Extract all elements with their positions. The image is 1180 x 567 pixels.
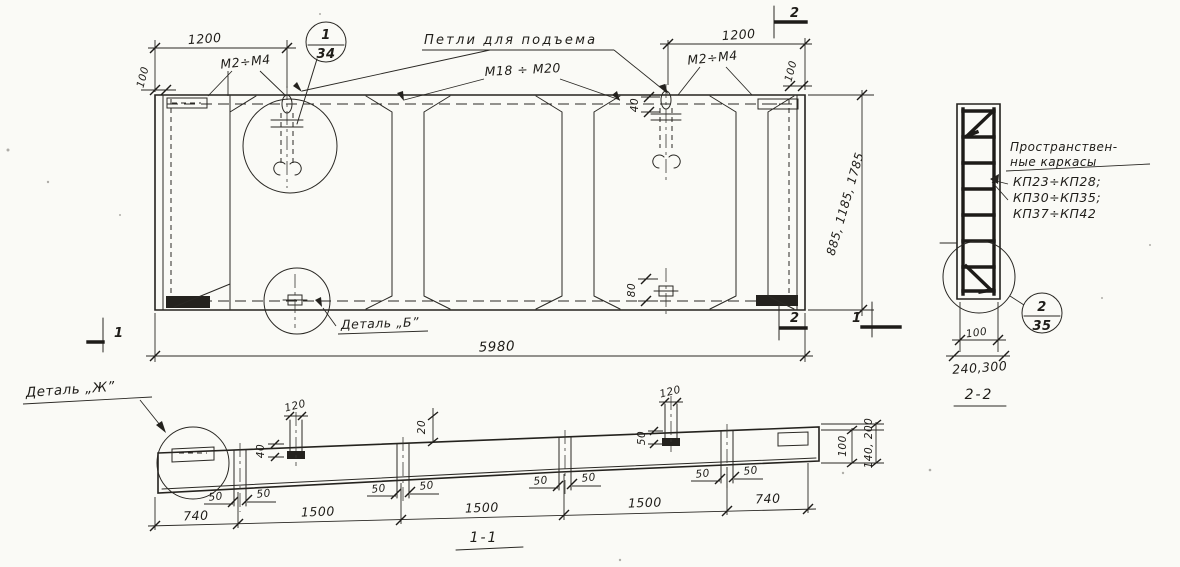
spatial-cage	[963, 109, 994, 294]
balloon-sheet-number: 34	[316, 47, 335, 62]
section-1-1-title: 1-1	[456, 530, 523, 550]
view-title: 2-2	[965, 387, 994, 403]
dim-label: 100	[783, 59, 800, 83]
dim-label: 80	[626, 283, 638, 297]
dim-label: 5980	[478, 338, 515, 355]
loop-plate-b: 120 50	[636, 384, 683, 452]
drawing-sheet: 1 34 Петли для подъема М2÷М4 М18 ÷ М20 М…	[0, 0, 1180, 567]
section-mark-1-right: 1	[852, 302, 900, 337]
section-mark-1-left: 1	[88, 318, 124, 352]
section-2-2-view: Пространствен- ные каркасы КП23÷КП28; КП…	[940, 104, 1150, 406]
detail-zh-callout: Деталь „Ж”	[23, 379, 166, 433]
balloon-sheet-number: 35	[1032, 319, 1051, 334]
mark-label: М2÷М4	[220, 51, 272, 71]
detail-balloon-2-35: 2 35	[1010, 293, 1062, 334]
detail-circle-loop	[243, 99, 337, 193]
dim-label: 240,300	[952, 358, 1008, 377]
section-mark-label: 1	[852, 311, 862, 326]
mark-label: М2÷М4	[687, 47, 739, 67]
dim-label: 50	[533, 474, 549, 487]
dim-label: 140, 200	[863, 418, 875, 469]
lifting-loop-2	[651, 84, 681, 182]
detail-b-callout: Деталь „Б”	[315, 297, 428, 334]
dim-label: 40	[629, 98, 641, 112]
detail-zh-plate	[157, 427, 229, 499]
loops-callout-label: Петли для подъема	[424, 33, 597, 48]
dim-label: 740	[755, 491, 781, 507]
arrowhead	[315, 297, 322, 307]
callout-line: Пространствен-	[1010, 140, 1118, 154]
plan-view: 1 34 Петли для подъема М2÷М4 М18 ÷ М20 М…	[88, 6, 900, 362]
panel-working-drawing: 1 34 Петли для подъема М2÷М4 М18 ÷ М20 М…	[0, 0, 1180, 567]
mark-m2m4-left: М2÷М4	[208, 51, 286, 96]
dim-100-right: 100	[783, 59, 812, 91]
dim-label: 50	[636, 431, 648, 445]
section-mark-label: 2	[790, 6, 800, 21]
dim-label: 100	[965, 326, 988, 341]
dim-label: 50	[208, 490, 224, 503]
end-plate	[778, 432, 808, 446]
section-mark-label: 1	[114, 326, 124, 341]
dim-label: 120	[283, 398, 307, 415]
balloon-detail-number: 1	[321, 28, 331, 43]
dim-label: 1500	[628, 494, 662, 510]
arrowhead	[156, 421, 166, 433]
dim-label: 50	[581, 471, 597, 484]
dim-label: 50	[419, 479, 435, 492]
detail-balloon-1-34: 1 34	[297, 22, 346, 124]
dim-label: 1500	[465, 499, 499, 515]
detail-zh-label: Деталь „Ж”	[24, 379, 116, 401]
dim-label: 50	[695, 467, 711, 480]
cages-callout: Пространствен- ные каркасы КП23÷КП28; КП…	[990, 140, 1150, 221]
dim-label: 50	[371, 482, 387, 495]
embedded-plate	[166, 98, 798, 308]
transverse-ribs	[174, 96, 794, 309]
dim-label: 1200	[721, 26, 756, 43]
view-title: 1-1	[470, 530, 499, 546]
dim-label: 100	[837, 435, 849, 457]
dim-label: 50	[743, 464, 759, 477]
arrowhead	[293, 82, 302, 92]
section-mark-label: 2	[790, 311, 800, 326]
dim-20: 20	[416, 408, 438, 446]
dim-label: 740	[183, 508, 209, 524]
dim-label: 1500	[301, 503, 335, 519]
mark-label: М18 ÷ М20	[484, 60, 561, 79]
cage-marks-line: КП23÷КП28;	[1013, 174, 1101, 189]
loops-callout: Петли для подъема	[293, 33, 668, 94]
section-mark-2-top: 2	[774, 6, 806, 38]
section-2-2-title: 2-2	[954, 387, 1006, 406]
dim-panel-widths: 885, 1185, 1785	[808, 90, 874, 316]
dim-label: 100	[135, 65, 152, 89]
mark-m2m4-right: М2÷М4	[678, 47, 752, 95]
dim-label: 20	[416, 420, 428, 434]
dim-label: 1200	[187, 30, 222, 47]
loop-plate-a: 120 40	[255, 398, 308, 466]
dim-label: 40	[255, 444, 267, 458]
dim-panel-length: 5980	[146, 313, 813, 362]
dim-label: 885, 1185, 1785	[824, 151, 867, 257]
section-1-1-view: Деталь „Ж” 50 50 50 50 50 50	[23, 379, 884, 550]
cage-marks-line: КП37÷КП42	[1013, 206, 1096, 221]
end-height-dims: 100 140, 200	[821, 418, 884, 469]
dim-label: 50	[256, 487, 272, 500]
cage-marks-line: КП30÷КП35;	[1013, 190, 1101, 205]
balloon-detail-number: 2	[1037, 300, 1047, 315]
detail-b-label: Деталь „Б”	[340, 314, 420, 332]
dim-label: 120	[658, 384, 682, 401]
